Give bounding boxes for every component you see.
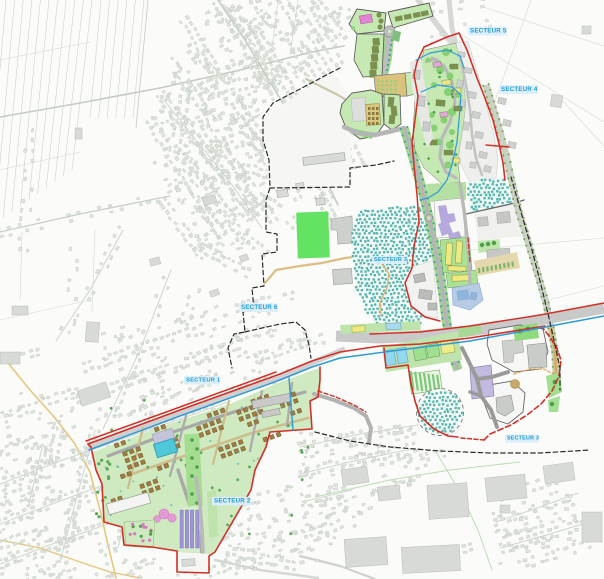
svg-text:SECTEUR 4: SECTEUR 4 — [501, 86, 538, 93]
svg-text:SECTEUR 3: SECTEUR 3 — [507, 436, 539, 442]
svg-text:SECTEUR 5: SECTEUR 5 — [470, 28, 507, 35]
svg-text:SECTEUR 1: SECTEUR 1 — [186, 378, 221, 384]
svg-text:SECTEUR 2: SECTEUR 2 — [214, 498, 251, 505]
svg-text:SECTEUR 3: SECTEUR 3 — [374, 257, 407, 263]
svg-text:SECTEUR 6: SECTEUR 6 — [241, 304, 278, 311]
